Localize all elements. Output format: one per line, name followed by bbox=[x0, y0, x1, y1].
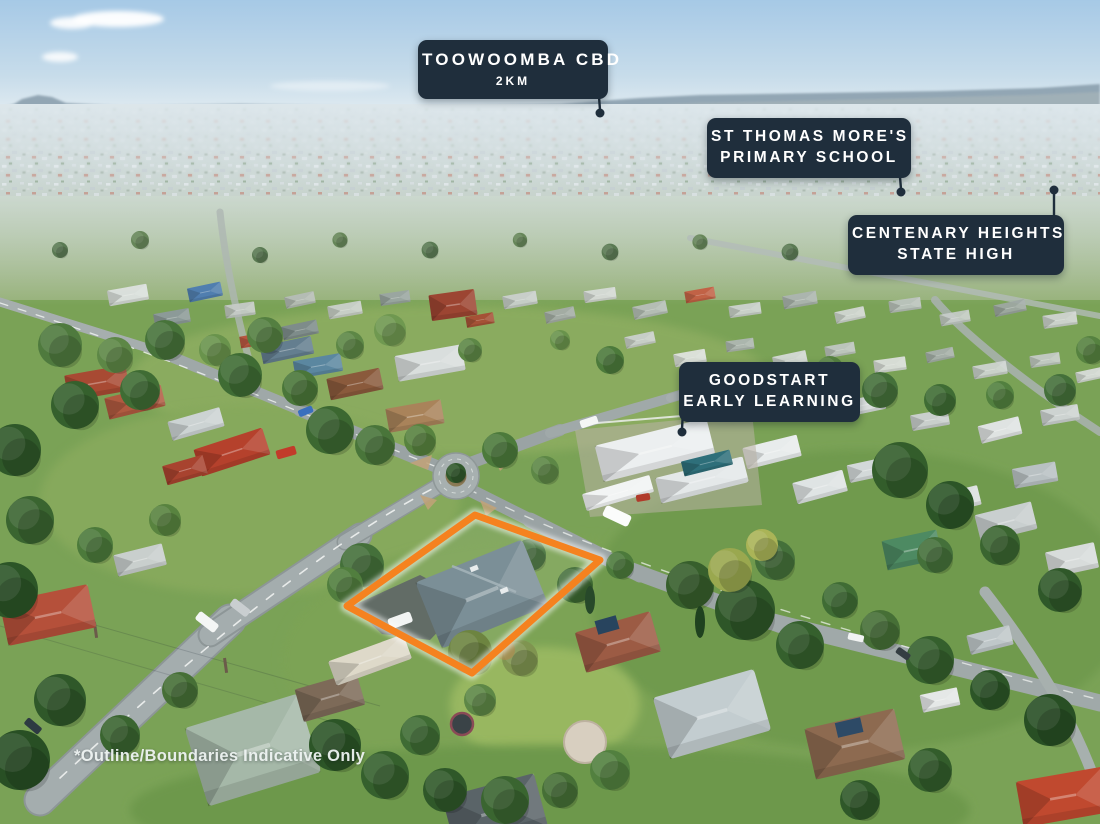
callout-title: ST THOMAS MORE'S bbox=[711, 126, 907, 147]
aerial-photo-stage: TOOWOOMBA CBD 2KM ST THOMAS MORE'S PRIMA… bbox=[0, 0, 1100, 824]
callout-goodstart: GOODSTART EARLY LEARNING bbox=[679, 362, 860, 422]
callout-subtitle: STATE HIGH bbox=[852, 244, 1060, 265]
callout-title: CENTENARY HEIGHTS bbox=[852, 223, 1060, 244]
cypress-tree bbox=[585, 586, 595, 614]
callout-subtitle: PRIMARY SCHOOL bbox=[711, 147, 907, 168]
callout-subtitle: EARLY LEARNING bbox=[683, 391, 856, 412]
callout-centenary-heights: CENTENARY HEIGHTS STATE HIGH bbox=[848, 215, 1064, 275]
cypress-tree bbox=[695, 606, 705, 638]
callout-title: GOODSTART bbox=[683, 370, 856, 391]
map-dot-goodstart bbox=[678, 428, 687, 437]
callout-toowoomba-cbd: TOOWOOMBA CBD 2KM bbox=[418, 40, 608, 99]
map-dot-st-thomas-mores bbox=[897, 188, 906, 197]
map-dot-centenary-heights bbox=[1050, 186, 1059, 195]
callout-title: TOOWOOMBA CBD bbox=[422, 48, 604, 71]
callout-st-thomas-mores: ST THOMAS MORE'S PRIMARY SCHOOL bbox=[707, 118, 911, 178]
disclaimer-text: *Outline/Boundaries Indicative Only bbox=[74, 747, 365, 766]
trampoline bbox=[451, 713, 473, 735]
aerial-photo bbox=[0, 0, 1100, 824]
map-dot-toowoomba-cbd bbox=[596, 109, 605, 118]
callout-subtitle: 2KM bbox=[422, 73, 604, 90]
